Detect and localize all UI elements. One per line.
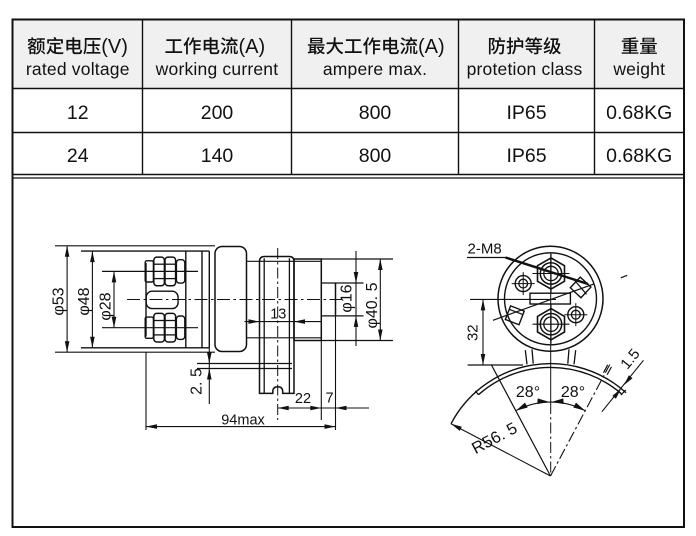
svg-text:28°: 28° [516, 384, 540, 401]
svg-text:0.68KG: 0.68KG [606, 102, 672, 124]
svg-text:φ53: φ53 [51, 287, 68, 315]
svg-text:32: 32 [465, 324, 482, 341]
svg-text:7: 7 [325, 391, 333, 407]
svg-text:12: 12 [67, 102, 89, 124]
svg-text:IP65: IP65 [506, 145, 546, 167]
svg-text:140: 140 [201, 145, 234, 167]
svg-text:IP65: IP65 [506, 102, 546, 124]
svg-text:(A): (A) [418, 36, 445, 58]
svg-text:working current: working current [155, 59, 279, 79]
svg-text:13: 13 [270, 306, 286, 322]
svg-text:φ16: φ16 [339, 284, 356, 312]
svg-text:28°: 28° [561, 384, 585, 401]
svg-text:φ48: φ48 [76, 287, 93, 315]
svg-text:800: 800 [359, 145, 392, 167]
svg-text:weight: weight [612, 59, 665, 79]
svg-text:ampere max.: ampere max. [323, 59, 427, 79]
svg-text:0.68KG: 0.68KG [606, 145, 672, 167]
svg-text:24: 24 [67, 145, 89, 167]
svg-text:(V): (V) [101, 36, 128, 58]
svg-text:2-M8: 2-M8 [468, 241, 502, 258]
svg-text:200: 200 [201, 102, 234, 124]
svg-text:protetion class: protetion class [467, 59, 583, 79]
svg-text:φ40. 5: φ40. 5 [364, 282, 381, 328]
svg-text:(A): (A) [239, 36, 266, 58]
svg-text:94max: 94max [221, 413, 265, 429]
svg-text:φ28: φ28 [97, 292, 114, 320]
svg-text:rated voltage: rated voltage [26, 59, 130, 79]
svg-text:22: 22 [295, 391, 311, 407]
svg-text:2. 5: 2. 5 [189, 368, 206, 395]
svg-text:800: 800 [359, 102, 392, 124]
